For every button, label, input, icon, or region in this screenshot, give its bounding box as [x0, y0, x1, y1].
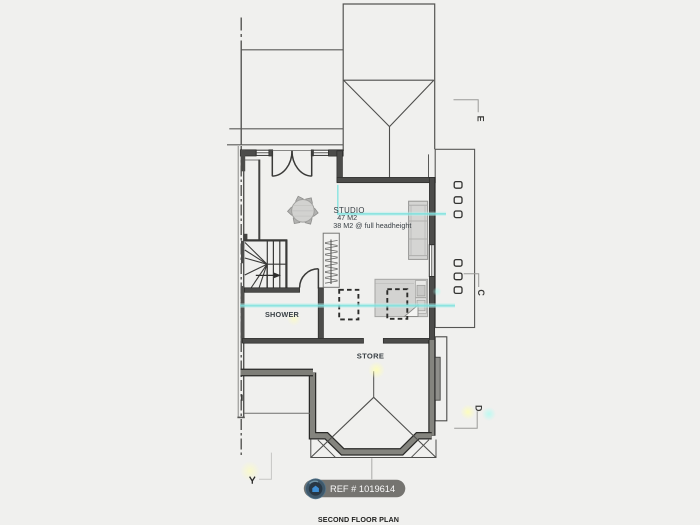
- svg-text:38 M2 @ full headheight: 38 M2 @ full headheight: [333, 221, 411, 230]
- svg-text:E: E: [475, 116, 485, 122]
- svg-text:REF # 1019614: REF # 1019614: [330, 484, 395, 494]
- svg-text:C: C: [476, 289, 486, 296]
- svg-text:STORE: STORE: [357, 351, 385, 360]
- svg-text:D: D: [474, 405, 484, 412]
- svg-text:SECOND FLOOR PLAN: SECOND FLOOR PLAN: [318, 515, 399, 524]
- svg-text:SHOWER: SHOWER: [265, 310, 300, 319]
